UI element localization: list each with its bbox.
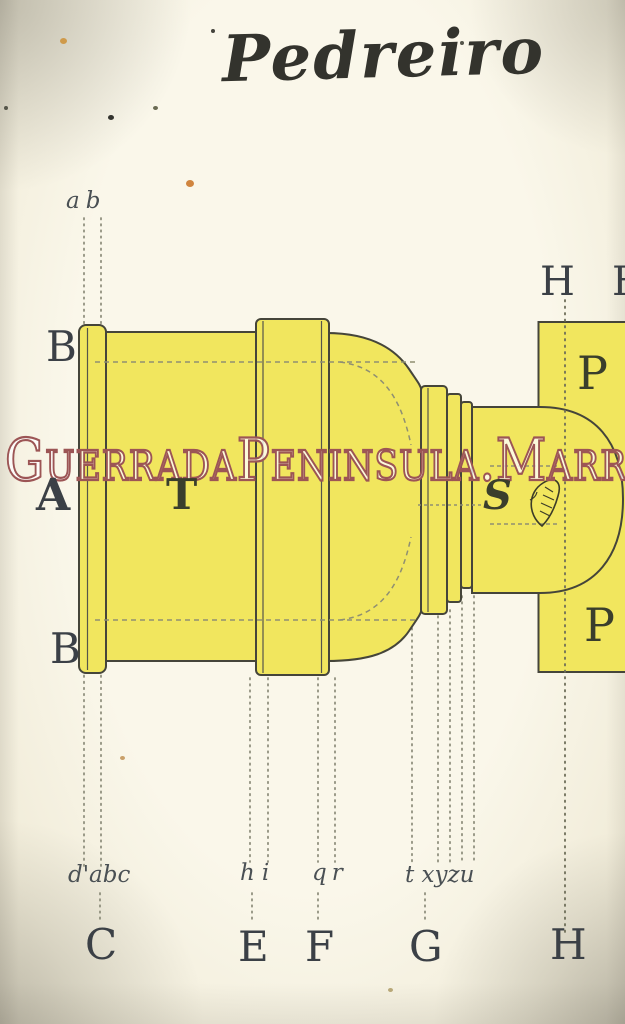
scanned-plate-page: GuerradaPeninsula.Marr Pedreiro ab B A B…: [0, 0, 625, 1024]
label-P-lower: P: [584, 602, 615, 648]
paper-speck: [108, 115, 114, 120]
paper-speck: [4, 106, 8, 110]
paper-speck: [153, 106, 158, 110]
label-txyzu-bottom: t xyzu: [405, 864, 474, 887]
paper-speck: [60, 38, 67, 44]
label-H-bottom: H: [550, 924, 587, 966]
label-B-upper: B: [46, 326, 77, 368]
label-G-bottom: G: [409, 926, 443, 968]
label-B-lower: B: [50, 628, 81, 670]
label-H-top-partial: H: [612, 262, 625, 302]
cannon-ring-band: [256, 319, 329, 675]
label-E-bottom: E: [238, 926, 269, 968]
label-H-top: H: [540, 262, 575, 302]
label-C-bottom: C: [85, 924, 117, 966]
label-ab-top: ab: [66, 190, 106, 213]
label-A-left: A: [36, 474, 70, 518]
label-F-bottom: F: [305, 926, 334, 968]
cannon-base-ring: [79, 325, 106, 673]
paper-speck: [388, 988, 393, 992]
label-qr-bottom: qr: [312, 862, 348, 885]
label-T-body: T: [166, 474, 197, 516]
label-dabc-bottom: d'abc: [68, 864, 130, 887]
label-S-neck: S: [483, 476, 512, 516]
label-hi-bottom: hi: [240, 862, 276, 885]
plate-title: Pedreiro: [221, 14, 546, 97]
cannon-dome: [326, 333, 422, 661]
paper-speck: [120, 756, 125, 760]
watermark-text: GuerradaPeninsula.Marr: [5, 431, 625, 489]
paper-speck: [211, 29, 215, 33]
paper-speck: [186, 180, 194, 187]
neck-band-1: [421, 386, 447, 614]
label-P-upper: P: [577, 350, 608, 396]
